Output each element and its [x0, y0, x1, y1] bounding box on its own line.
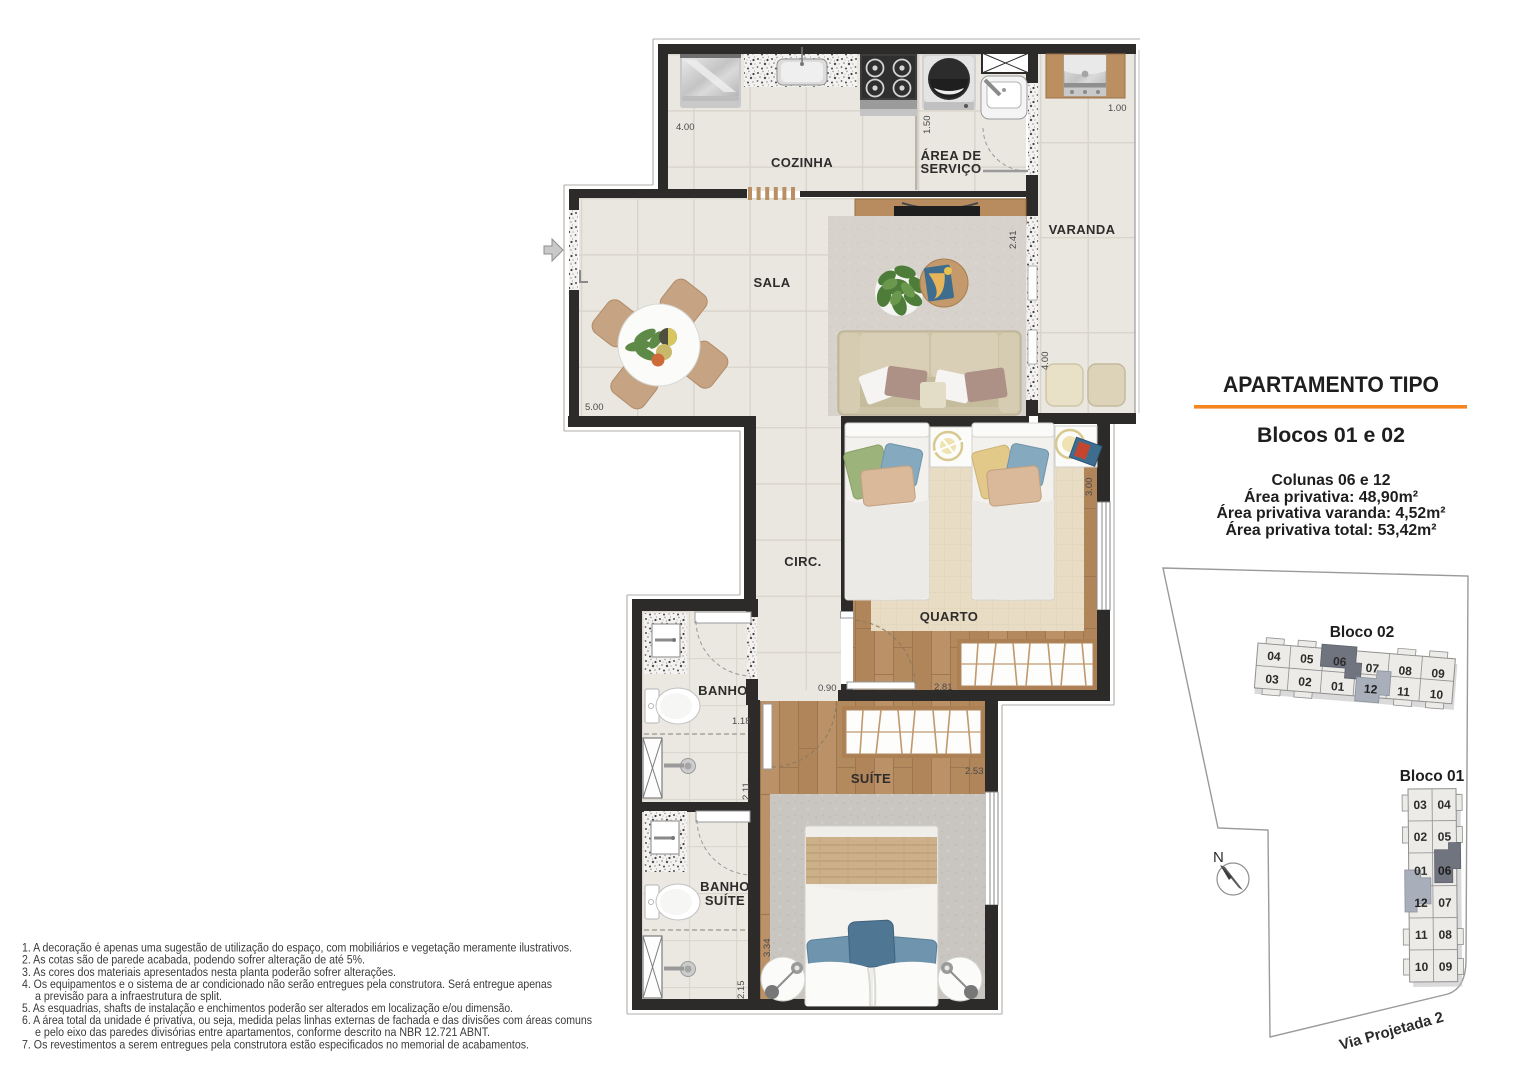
svg-text:3.34: 3.34	[762, 939, 773, 958]
svg-text:4.00: 4.00	[676, 122, 695, 133]
svg-text:12: 12	[1414, 896, 1428, 910]
svg-text:11: 11	[1397, 684, 1411, 699]
svg-text:Colunas 06 e 12: Colunas 06 e 12	[1272, 472, 1391, 489]
svg-text:2.53: 2.53	[965, 766, 984, 777]
svg-text:11: 11	[1415, 928, 1428, 942]
svg-text:QUARTO: QUARTO	[920, 609, 979, 624]
svg-text:Área privativa varanda: 4,52m²: Área privativa varanda: 4,52m²	[1217, 503, 1446, 522]
svg-text:09: 09	[1439, 960, 1453, 974]
svg-text:02: 02	[1298, 674, 1313, 689]
svg-text:09: 09	[1431, 666, 1446, 681]
svg-text:Blocos 01 e 02: Blocos 01 e 02	[1257, 424, 1405, 447]
svg-text:1.00: 1.00	[1108, 103, 1127, 114]
svg-text:1.50: 1.50	[922, 116, 933, 135]
svg-text:12: 12	[1363, 682, 1378, 697]
svg-text:SUÍTE: SUÍTE	[705, 893, 745, 908]
svg-text:06: 06	[1438, 864, 1452, 878]
svg-text:2.11: 2.11	[741, 782, 752, 800]
svg-text:2.81: 2.81	[934, 682, 953, 693]
svg-text:APARTAMENTO TIPO: APARTAMENTO TIPO	[1223, 372, 1439, 397]
svg-text:2.15: 2.15	[736, 981, 747, 1000]
svg-text:Área privativa total: 53,42m²: Área privativa total: 53,42m²	[1226, 520, 1437, 539]
svg-text:2.41: 2.41	[1008, 231, 1019, 250]
svg-text:04: 04	[1437, 798, 1451, 812]
svg-text:01: 01	[1414, 864, 1428, 878]
svg-text:Bloco 01: Bloco 01	[1400, 768, 1465, 785]
svg-text:07: 07	[1365, 661, 1380, 676]
svg-text:Área privativa: 48,90m²: Área privativa: 48,90m²	[1244, 487, 1418, 506]
svg-text:06: 06	[1333, 654, 1348, 669]
svg-text:SERVIÇO: SERVIÇO	[920, 161, 981, 176]
svg-text:10: 10	[1415, 960, 1429, 974]
svg-text:5.00: 5.00	[585, 402, 604, 413]
svg-text:05: 05	[1300, 651, 1315, 666]
svg-text:SALA: SALA	[754, 275, 791, 290]
svg-text:03: 03	[1265, 672, 1280, 687]
svg-text:Bloco 02: Bloco 02	[1330, 624, 1395, 641]
svg-text:03: 03	[1413, 798, 1427, 812]
svg-text:07: 07	[1438, 896, 1452, 910]
svg-text:BANHO: BANHO	[698, 683, 748, 698]
svg-text:N: N	[1213, 849, 1224, 866]
svg-text:SUÍTE: SUÍTE	[851, 771, 891, 786]
svg-text:02: 02	[1414, 830, 1428, 844]
svg-text:3.00: 3.00	[1084, 478, 1095, 497]
svg-text:08: 08	[1398, 663, 1413, 678]
svg-text:COZINHA: COZINHA	[771, 155, 833, 170]
svg-text:04: 04	[1267, 649, 1282, 664]
svg-text:0.90: 0.90	[818, 683, 837, 694]
svg-text:08: 08	[1439, 928, 1453, 942]
svg-text:7. Os revestimentos a serem en: 7. Os revestimentos a serem entregues pe…	[22, 1037, 529, 1051]
svg-text:BANHO: BANHO	[700, 879, 750, 894]
svg-text:10: 10	[1429, 687, 1444, 702]
svg-text:01: 01	[1331, 679, 1346, 694]
svg-text:4.00: 4.00	[1040, 352, 1051, 371]
svg-text:CIRC.: CIRC.	[784, 554, 821, 569]
svg-text:05: 05	[1438, 830, 1452, 844]
svg-text:1.18: 1.18	[732, 716, 751, 727]
svg-text:VARANDA: VARANDA	[1049, 222, 1116, 237]
